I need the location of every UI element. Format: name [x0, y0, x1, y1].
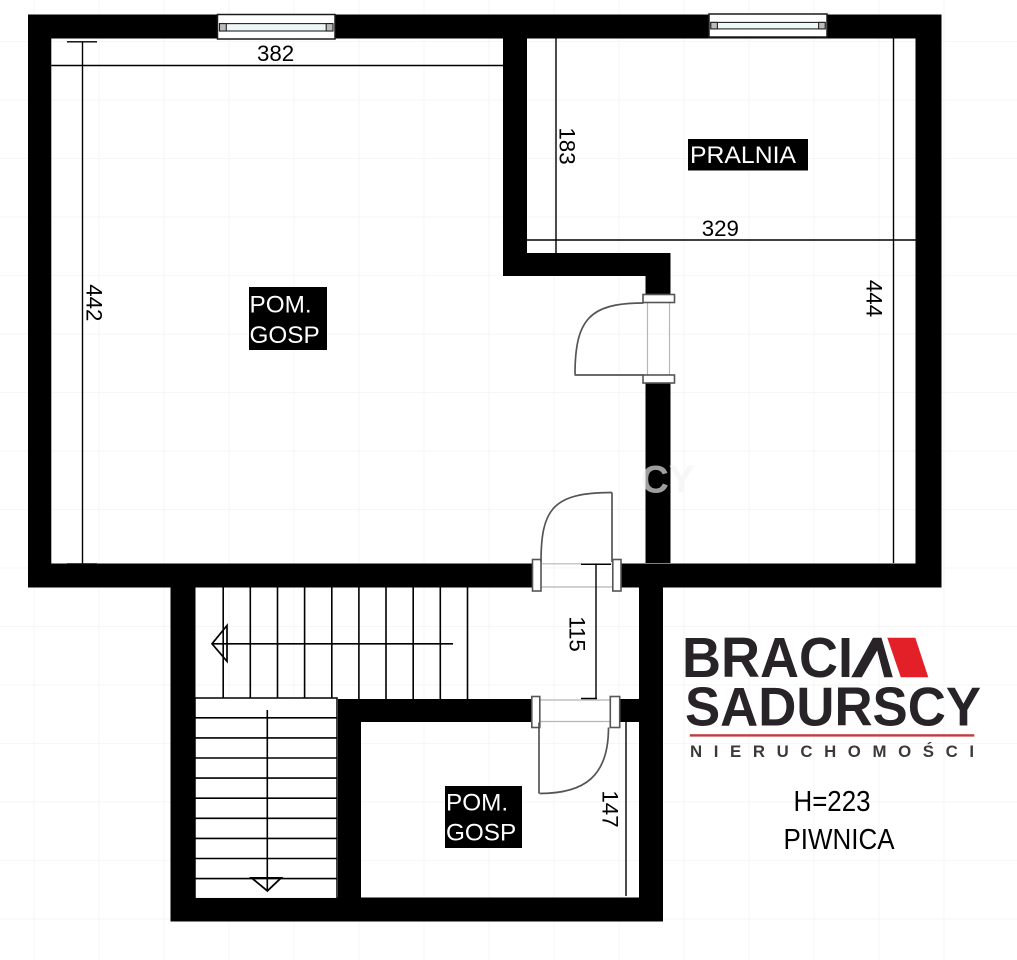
svg-text:PIWNICA: PIWNICA — [784, 824, 896, 856]
svg-text:SADURSCY: SADURSCY — [685, 676, 981, 738]
svg-text:POM.: POM. — [446, 790, 508, 817]
svg-text:382: 382 — [257, 41, 294, 66]
svg-text:POM.: POM. — [250, 292, 312, 319]
svg-text:329: 329 — [702, 216, 739, 241]
svg-text:442: 442 — [82, 284, 107, 321]
svg-text:115: 115 — [565, 616, 590, 652]
svg-text:147: 147 — [598, 790, 623, 827]
svg-text:183: 183 — [555, 127, 580, 164]
svg-text:H=223: H=223 — [794, 786, 871, 818]
svg-text:PRALNIA: PRALNIA — [690, 142, 797, 169]
svg-text:CY: CY — [641, 459, 695, 502]
svg-text:GOSP: GOSP — [446, 820, 516, 847]
svg-text:NIERUCHOMOŚCI: NIERUCHOMOŚCI — [690, 742, 974, 761]
svg-text:444: 444 — [862, 280, 887, 317]
svg-text:GOSP: GOSP — [250, 322, 320, 349]
